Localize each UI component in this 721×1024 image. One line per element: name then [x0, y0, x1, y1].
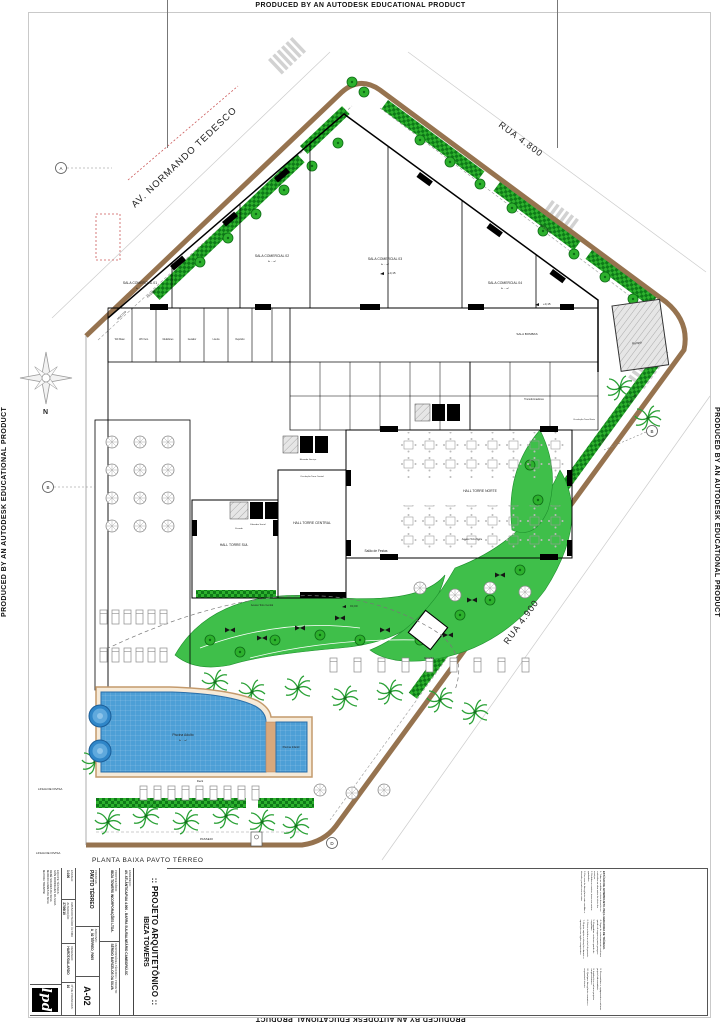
pool-divider — [266, 722, 276, 772]
title-block: :: PROJETO ARQUITETÔNICO :: IBIZA TOWERS… — [30, 868, 167, 1016]
team-member: RENÉ SOARES DA SILVA — [49, 870, 53, 982]
scale-value: 1:100 — [66, 870, 70, 897]
note-item: 8- Reservatórios e equipamentos conforme… — [596, 968, 602, 1013]
marker-b-right: B — [650, 429, 653, 434]
drawing-by-field: DESENHO: HARDT/GALARDO — [62, 944, 75, 982]
label-sala-04-area: A: ... m² — [501, 287, 509, 290]
team-member: IVAN RODRIGUES DA SILVA — [52, 870, 56, 982]
north-label: N — [43, 409, 48, 416]
meio-fio-top: MEIO FIO — [116, 310, 127, 321]
scale-label: ESCALA: — [70, 870, 74, 897]
note-item: 3- Em caso de divergência entre medidas … — [580, 871, 586, 916]
crosswalk-top — [268, 37, 306, 75]
note-item: 10- Qualquer divergência comunicar o res… — [583, 968, 589, 1013]
spa-1 — [89, 705, 111, 727]
lounge-furniture — [100, 436, 174, 662]
ramp-area — [612, 299, 669, 371]
label-sala-03: SALA COMERCIAL 03 — [368, 257, 402, 261]
strip-divider-1 — [167, 0, 168, 148]
file-label: ARQUIVO: — [94, 929, 98, 974]
label-sala-02-area: A: ... m² — [268, 260, 276, 263]
date-label: DATA/CONTEÚDO ÚLTIMA ALTERAÇÃO: — [66, 902, 74, 941]
label-salao: Salão de Festas — [364, 549, 387, 553]
note-item: 1- Todas as medidas e níveis deverão ser… — [593, 871, 601, 916]
label-circ-central: Circulação Torre Central — [300, 475, 324, 478]
plan-title: PLANTA BAIXA PAVTO TÉRREO — [92, 855, 204, 864]
label-wc-masc: WC Masc. — [115, 339, 126, 341]
responsible-value: SÉRGIO BARCELOS DA SILVA — [110, 944, 114, 1014]
label-acesso-norte: Acesso Torre Norte — [462, 538, 483, 541]
team-field: EQUIPE TÉCNICA: IVAN RODRIGUES DA SILVA … — [30, 868, 61, 985]
sheet-title-value: PAVTO TÉRREO — [88, 870, 94, 924]
note-item: 9- Instalações conforme projetos complem… — [589, 968, 595, 1013]
owner-label: PROPRIETÁRIO: — [114, 870, 118, 939]
file-field: ARQUIVO: A_02 TÉRREO_R005 — [76, 927, 99, 977]
label-hall-sul: HALL TORRE SUL — [220, 543, 249, 547]
note-item: 7- Projeto sujeito a alterações durante … — [579, 920, 585, 965]
label-sala-03-area: A: ... m² — [381, 263, 389, 266]
label-sala-02: SALA COMERCIAL 02 — [255, 254, 289, 258]
label-wc-fem: WC Fem. — [139, 339, 149, 341]
marker-b-left: B — [46, 485, 49, 490]
label-lixeira: Lixeira — [213, 338, 220, 341]
title-block-header: :: PROJETO ARQUITETÔNICO :: IBIZA TOWERS — [133, 868, 167, 1015]
level-015-a: +0,15 — [388, 271, 396, 275]
date-value: 27/09/10 — [62, 902, 66, 941]
address-field: ENDEREÇO: AV. ATLÂNTICA/RUA 4.900 - BARR… — [120, 868, 133, 1015]
notes-column: ESTÁGIO DE ANTEPROJETO. PEÇA GERADORA DE… — [557, 868, 607, 1016]
label-medidores: Medidores — [163, 338, 175, 341]
label-piscina-infantil: Piscina Infantil — [283, 745, 300, 749]
label-transformadores: Transformadores — [524, 397, 544, 401]
label-sala-01-area: A: ... m² — [136, 287, 144, 290]
sheet-count-label: Nº DE PRANCHAS: — [70, 985, 74, 1013]
responsible-field: RESPONSÁVEL TÉCNICO / PROJETO: SÉRGIO BA… — [100, 942, 119, 1016]
lpd-logo: lpd — [33, 988, 59, 1013]
spa-2 — [89, 740, 111, 762]
street-top-label: RUA 4.800 — [497, 120, 545, 159]
project-type-title: :: PROJETO ARQUITETÔNICO :: — [150, 878, 159, 1006]
address-label: ENDEREÇO: — [128, 870, 132, 1013]
level-015-b: +0,15 — [543, 302, 551, 306]
scale-field: ESCALA: 1:100 — [62, 868, 75, 900]
label-piscina-adulto-area: A: ... m² — [179, 739, 187, 742]
owner-field: PROPRIETÁRIO: IBIZA TOWERS INCORPORAÇÕES… — [100, 868, 119, 942]
label-hall-norte: HALL TORRE NORTE — [463, 489, 498, 493]
label-circ-norte: Circulação Torre Norte — [573, 418, 596, 421]
label-elev-social: Elevador Social — [250, 523, 266, 526]
label-elev-servico: Elevador Serviço — [300, 458, 317, 461]
label-sala-bombas: SALA BOMBAS — [516, 332, 537, 336]
file-value: A_02 TÉRREO_R005 — [90, 929, 94, 974]
note-item: 6- Níveis referidos ao nível do passeio. — [585, 920, 588, 965]
adult-pool — [101, 692, 266, 772]
label-sala-01: SALA COMERCIAL 01 — [123, 281, 157, 285]
passeio-bottom: PASSEIO — [200, 837, 214, 841]
notes-heading: ESTÁGIO DE ANTEPROJETO. PEÇA GERADORA DE… — [602, 871, 605, 1013]
note-item: 4- Vagas de estacionamento conforme quad… — [596, 920, 602, 965]
avenue-label: AV. NORMANDO TEDESCO — [129, 105, 239, 210]
team-label: EQUIPE TÉCNICA: — [56, 870, 60, 982]
label-gerador: Gerador — [188, 338, 197, 341]
lpd-logo-text: lpd — [38, 988, 53, 1013]
sheet-title-field: PRANCHA: PAVTO TÉRREO — [76, 868, 99, 927]
label-piscina-adulto: Piscina Adulto — [172, 733, 193, 737]
drawing-by-label: DESENHO: — [70, 946, 74, 979]
sheet-number-field: A-02 — [76, 977, 99, 1015]
linha-divisa-2: LINHA DE DIVISA — [36, 851, 60, 855]
label-escada: Escada — [235, 528, 243, 530]
label-hall-central: HALL TORRE CENTRAL — [293, 521, 331, 525]
project-name: IBIZA TOWERS — [142, 916, 149, 967]
level-000: ±0,00 — [350, 604, 358, 608]
sheet-number: A-02 — [83, 979, 93, 1013]
address-value: AV. ATLÂNTICA/RUA 4.900 - BARRA SUL/BALN… — [124, 870, 128, 1013]
logo-cell: lpd — [30, 985, 61, 1015]
responsible-label: RESPONSÁVEL TÉCNICO / PROJETO: — [114, 944, 118, 1014]
sheet-count-field: Nº DE PRANCHAS: 10 — [62, 983, 75, 1015]
label-guarita: Guarita — [424, 656, 434, 660]
sheet: PRODUCED BY AN AUTODESK EDUCATIONAL PROD… — [0, 0, 721, 1024]
north-compass — [20, 352, 72, 404]
team-member: MARCIO GOMES DA SILVA — [45, 870, 49, 982]
label-deck: Deck — [197, 779, 204, 783]
note-item: 2- Medidas em metros, áreas em metros qu… — [586, 871, 592, 916]
drawing-by-value: HARDT/GALARDO — [66, 946, 70, 979]
team-member: MAYARA TRENTINI — [41, 870, 45, 982]
linha-divisa-1: LINHA DE DIVISA — [38, 787, 62, 791]
label-deposito: Depósito — [235, 338, 245, 341]
label-sala-04: SALA COMERCIAL 04 — [488, 281, 522, 285]
marker-a: A — [59, 166, 62, 171]
sheet-title-label: PRANCHA: — [94, 870, 98, 924]
date-field: DATA/CONTEÚDO ÚLTIMA ALTERAÇÃO: 27/09/10 — [62, 900, 75, 944]
owner-value: IBIZA TOWERS INCORPORAÇÕES LTDA. — [110, 870, 114, 939]
note-item: 5- Esquadrias conforme quadro de esquadr… — [589, 920, 595, 965]
strip-divider-2 — [557, 0, 558, 148]
label-acesso-central: Acesso Torre Central — [251, 604, 274, 607]
